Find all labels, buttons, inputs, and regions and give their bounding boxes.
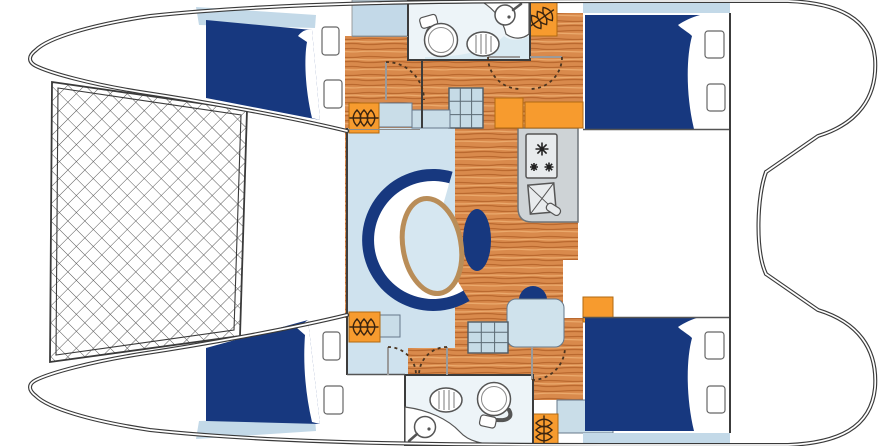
basin-drain bbox=[507, 15, 510, 18]
oval-basin bbox=[467, 32, 499, 56]
blue-sideboard-3 bbox=[380, 315, 400, 337]
trampoline-net bbox=[50, 82, 247, 362]
deck-hatch bbox=[707, 84, 725, 111]
hanging-locker-4 bbox=[530, 414, 558, 446]
berth-starboard-aft bbox=[585, 15, 700, 129]
deck-hatch bbox=[322, 27, 339, 55]
kidney-stool bbox=[463, 209, 491, 271]
deck-hatch bbox=[324, 80, 342, 108]
stove-burner bbox=[545, 163, 554, 172]
companionway-steps-port bbox=[468, 322, 508, 353]
galley bbox=[518, 128, 578, 222]
basin-drain bbox=[427, 427, 430, 430]
aft-deck-white bbox=[563, 260, 578, 318]
stove-burner bbox=[530, 163, 538, 171]
blue-sideboard-2 bbox=[412, 110, 450, 128]
catamaran-floor-plan bbox=[0, 0, 890, 446]
blue-sideboard-1 bbox=[378, 103, 412, 127]
deck-hatch bbox=[324, 386, 343, 414]
hanging-locker-2 bbox=[349, 103, 379, 133]
stove bbox=[526, 134, 557, 178]
deck-hatch bbox=[705, 332, 724, 359]
bathroom-port bbox=[405, 375, 533, 445]
oval-basin bbox=[430, 388, 462, 412]
chart-desk bbox=[507, 299, 564, 347]
berth-port-aft bbox=[585, 317, 700, 431]
deck-hatch bbox=[705, 31, 724, 58]
bathroom-starboard bbox=[408, 0, 530, 60]
companionway-steps-starboard bbox=[449, 88, 483, 128]
deck-hatch bbox=[323, 332, 340, 360]
floor-plan-canvas bbox=[0, 0, 890, 446]
hanging-locker-3 bbox=[349, 312, 380, 342]
cabinet-starboard-small bbox=[495, 98, 523, 128]
deck-hatch bbox=[707, 386, 725, 413]
wash-basin bbox=[495, 5, 515, 25]
stove-burner bbox=[536, 143, 549, 156]
cabinet-starboard-long bbox=[525, 102, 583, 128]
